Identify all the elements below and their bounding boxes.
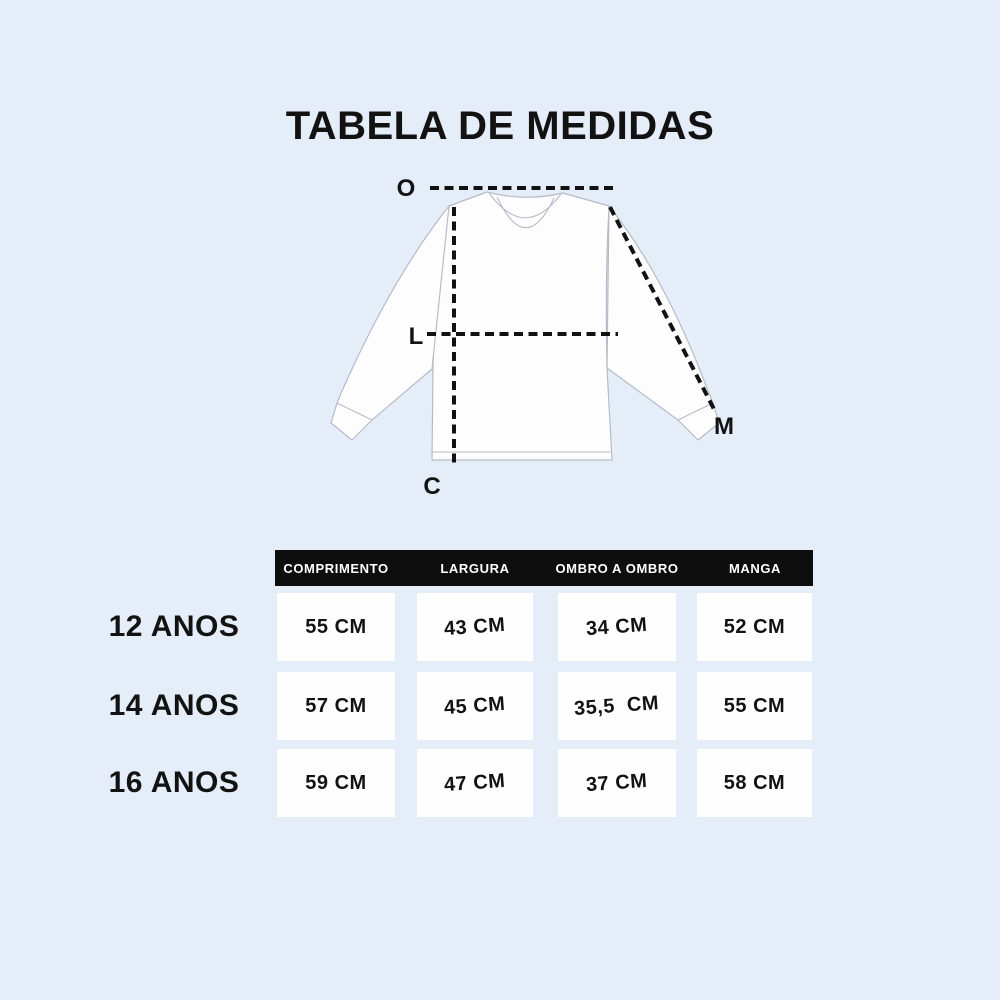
cell-12anos-ombro: 34 CM xyxy=(558,593,676,661)
cell-value: 57 CM xyxy=(305,695,366,718)
cell-value: 55 CM xyxy=(724,695,785,718)
cell-value: 47 CM xyxy=(444,769,507,796)
cell-value: 55 CM xyxy=(305,616,366,639)
cell-16anos-comprimento: 59 CM xyxy=(277,749,395,817)
row-label-14-anos: 14 ANOS xyxy=(100,672,248,740)
cell-value: 52 CM xyxy=(724,616,785,639)
shirt-left-sleeve xyxy=(331,206,449,440)
col-header-largura: LARGURA xyxy=(417,550,533,586)
cell-16anos-largura: 47 CM xyxy=(417,749,533,817)
cell-value: 35,5 CM xyxy=(574,692,661,721)
col-header-manga: MANGA xyxy=(697,550,813,586)
row-label-12-anos: 12 ANOS xyxy=(100,593,248,661)
cell-value: 43 CM xyxy=(444,613,507,640)
width-label: L xyxy=(409,323,424,350)
table-header: COMPRIMENTO LARGURA OMBRO A OMBRO MANGA xyxy=(275,550,813,586)
size-chart-infographic: TABELA DE MEDIDAS O L C M COMPRIMENTO LA… xyxy=(0,0,1000,1000)
cell-16anos-ombro: 37 CM xyxy=(558,749,676,817)
cell-14anos-ombro: 35,5 CM xyxy=(558,672,676,740)
cell-12anos-comprimento: 55 CM xyxy=(277,593,395,661)
cell-14anos-comprimento: 57 CM xyxy=(277,672,395,740)
cell-value: 34 CM xyxy=(586,613,649,640)
cell-value: 58 CM xyxy=(724,772,785,795)
cell-value: 45 CM xyxy=(444,692,507,719)
cell-value: 59 CM xyxy=(305,772,366,795)
cell-value: 37 CM xyxy=(586,769,649,796)
shirt-body xyxy=(432,192,612,460)
cell-12anos-manga: 52 CM xyxy=(697,593,812,661)
length-label: C xyxy=(423,473,440,500)
cell-12anos-largura: 43 CM xyxy=(417,593,533,661)
shoulder-label: O xyxy=(397,175,416,202)
col-header-comprimento: COMPRIMENTO xyxy=(277,550,395,586)
shirt-diagram: O L C M xyxy=(300,160,760,510)
shirt-right-sleeve xyxy=(607,206,719,440)
cell-14anos-largura: 45 CM xyxy=(417,672,533,740)
sleeve-label: M xyxy=(714,413,734,440)
row-label-16-anos: 16 ANOS xyxy=(100,749,248,817)
page-title: TABELA DE MEDIDAS xyxy=(0,104,1000,149)
cell-14anos-manga: 55 CM xyxy=(697,672,812,740)
col-header-ombro-a-ombro: OMBRO A OMBRO xyxy=(558,550,676,586)
cell-16anos-manga: 58 CM xyxy=(697,749,812,817)
